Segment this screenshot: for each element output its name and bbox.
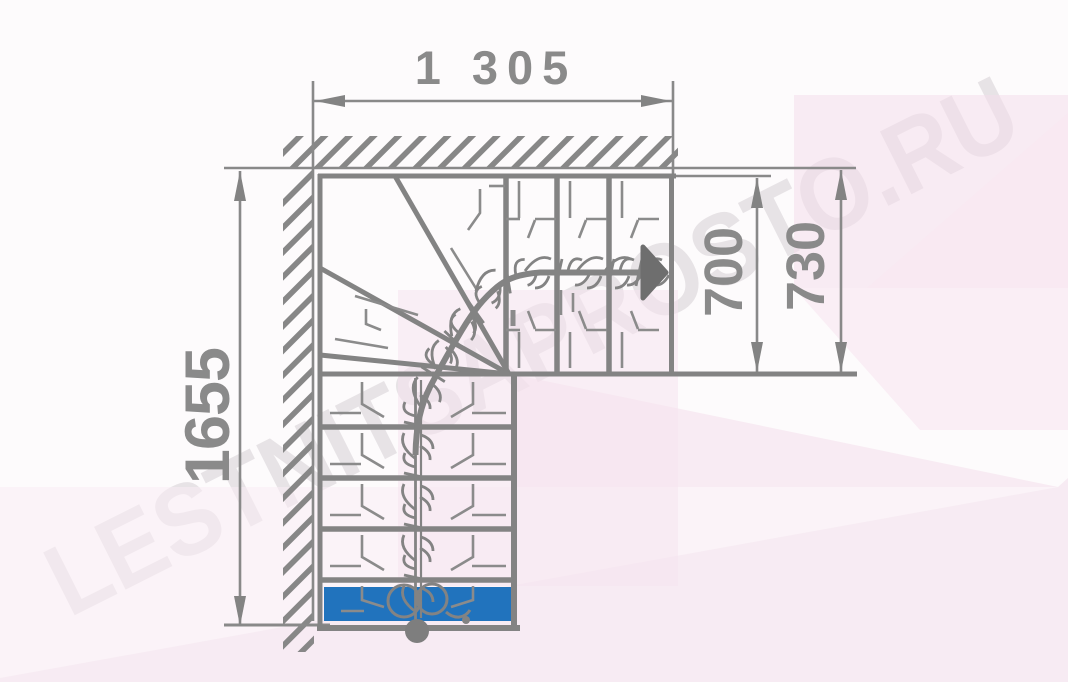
svg-text:700: 700 — [694, 227, 754, 317]
svg-text:1655: 1655 — [173, 348, 243, 484]
svg-text:1 305: 1 305 — [415, 41, 578, 94]
svg-text:730: 730 — [776, 221, 836, 311]
